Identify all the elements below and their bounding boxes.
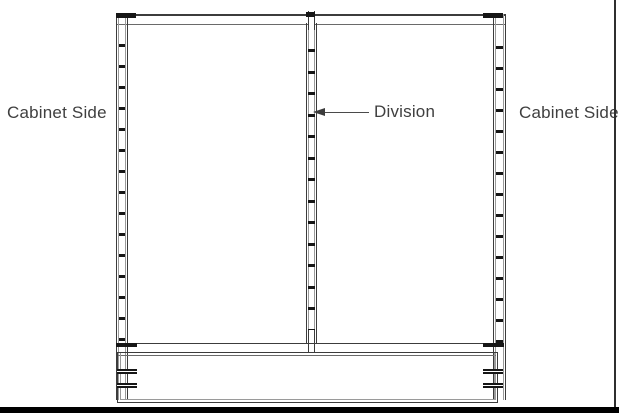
shelf-pin-hole [496, 277, 503, 280]
division-arrowhead-icon [313, 108, 325, 116]
shelf-pin-hole [308, 286, 315, 289]
shelf-pin-hole [119, 338, 125, 341]
dowel-mark-top-center [306, 12, 315, 17]
shelf-pin-hole [496, 109, 503, 112]
shelf-pin-hole [119, 233, 125, 236]
shelf-pin-hole [119, 149, 125, 152]
shelf-pin-hole [496, 193, 503, 196]
cabinet-elevation-diagram: Cabinet Side Cabinet Side Division [0, 0, 619, 413]
shelf-pin-hole [308, 200, 315, 203]
shelf-pin-hole [496, 67, 503, 70]
shelf-pin-hole [119, 170, 125, 173]
shelf-pin-hole [119, 296, 125, 299]
shelf-pin-hole [308, 307, 315, 310]
shelf-pin-hole [308, 221, 315, 224]
shelf-pin-hole [496, 298, 503, 301]
dowel-mark-base-right-upper [483, 369, 503, 374]
dowel-mark-top-right [483, 13, 503, 18]
shelf-pin-hole [119, 65, 125, 68]
shelf-pin-hole [496, 172, 503, 175]
shelf-pin-hole [496, 151, 503, 154]
shelf-pin-hole [119, 254, 125, 257]
shelf-pin-hole [308, 92, 315, 95]
shelf-pin-hole [496, 214, 503, 217]
cabinet-side-label-left: Cabinet Side [7, 104, 107, 122]
dowel-mark-shelf-left [116, 343, 137, 347]
dowel-mark-top-left [116, 13, 136, 18]
shelf-pin-hole [119, 212, 125, 215]
shelf-pin-hole [308, 135, 315, 138]
shelf-pin-hole [496, 235, 503, 238]
shelf-pin-hole [308, 243, 315, 246]
footer-bar [0, 407, 619, 413]
shelf-pin-hole [496, 88, 503, 91]
shelf-pin-hole [308, 157, 315, 160]
toe-kick-inner-line [120, 353, 495, 400]
shelf-pin-hole [119, 107, 125, 110]
shelf-pin-hole [119, 191, 125, 194]
shelf-pin-hole [496, 130, 503, 133]
shelf-pin-hole [119, 275, 125, 278]
dowel-mark-base-left-lower [117, 383, 137, 388]
dowel-mark-base-right-lower [483, 383, 503, 388]
shelf-pin-hole [496, 319, 503, 322]
shelf-pin-hole [308, 71, 315, 74]
shelf-pin-hole [119, 44, 125, 47]
shelf-pin-hole [119, 317, 125, 320]
cabinet-side-label-right: Cabinet Side [519, 104, 619, 122]
division-label: Division [374, 103, 435, 121]
dowel-mark-base-left-upper [117, 369, 137, 374]
shelf-pin-hole [496, 46, 503, 49]
page-right-border [614, 0, 616, 409]
division-panel [306, 23, 317, 343]
toe-kick-base [117, 352, 498, 403]
shelf-pin-hole [308, 178, 315, 181]
shelf-pin-hole [308, 49, 315, 52]
shelf-pin-hole [308, 264, 315, 267]
shelf-pin-hole [119, 128, 125, 131]
dowel-mark-shelf-right [483, 343, 504, 347]
shelf-pin-hole [496, 256, 503, 259]
division-leader-line [325, 112, 369, 113]
shelf-pin-hole [119, 86, 125, 89]
